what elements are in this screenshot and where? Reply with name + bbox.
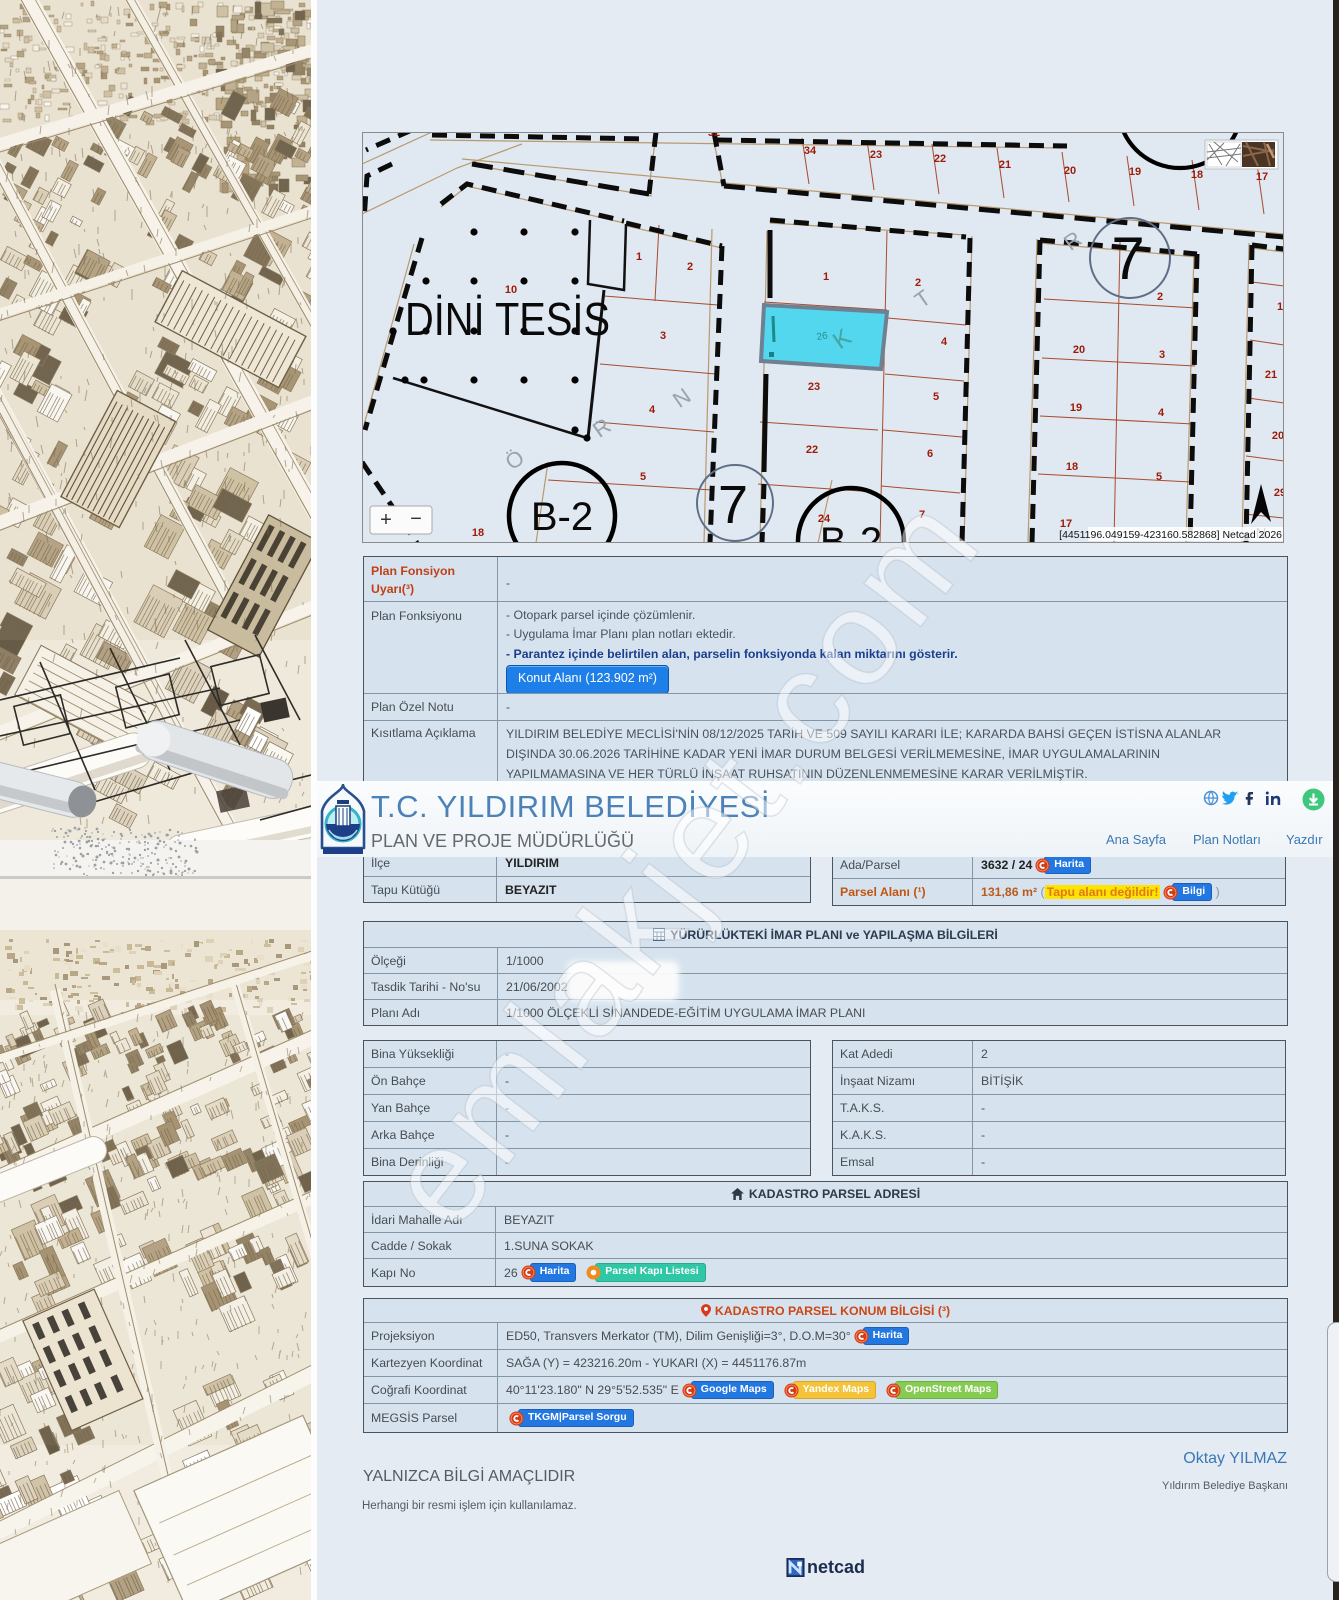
svg-text:21: 21 bbox=[999, 159, 1011, 171]
svg-text:5: 5 bbox=[640, 471, 646, 483]
svg-text:7: 7 bbox=[1111, 225, 1144, 292]
svg-text:−: − bbox=[410, 508, 422, 530]
svg-text:4: 4 bbox=[941, 336, 948, 348]
svg-text:22: 22 bbox=[934, 153, 946, 165]
svg-text:1: 1 bbox=[823, 271, 829, 283]
svg-text:22: 22 bbox=[806, 444, 818, 456]
svg-text:B-2: B-2 bbox=[820, 520, 882, 543]
svg-text:6: 6 bbox=[927, 448, 933, 460]
svg-text:7: 7 bbox=[919, 509, 925, 521]
svg-text:4: 4 bbox=[1158, 407, 1165, 419]
svg-text:DİNİ TESİS: DİNİ TESİS bbox=[405, 293, 610, 345]
svg-text:2: 2 bbox=[1157, 291, 1163, 303]
svg-text:3: 3 bbox=[660, 330, 666, 342]
svg-text:29: 29 bbox=[1274, 487, 1284, 499]
svg-text:20: 20 bbox=[1272, 430, 1284, 442]
svg-text:5: 5 bbox=[933, 391, 939, 403]
svg-text:5: 5 bbox=[1156, 471, 1162, 483]
svg-text:18: 18 bbox=[1066, 461, 1078, 473]
svg-text:[4451196.049159-423160.582868]: [4451196.049159-423160.582868] Netcad 20… bbox=[1059, 529, 1282, 541]
svg-text:19: 19 bbox=[1070, 402, 1082, 414]
svg-text:1: 1 bbox=[1277, 301, 1283, 313]
svg-text:18: 18 bbox=[1191, 169, 1203, 181]
svg-text:1: 1 bbox=[636, 251, 642, 263]
svg-text:B-2: B-2 bbox=[531, 495, 593, 539]
svg-text:23: 23 bbox=[870, 149, 882, 161]
svg-text:+: + bbox=[380, 509, 392, 531]
svg-text:23: 23 bbox=[808, 381, 820, 393]
svg-text:3: 3 bbox=[1159, 349, 1165, 361]
svg-text:20: 20 bbox=[1064, 165, 1076, 177]
svg-text:34: 34 bbox=[804, 145, 817, 157]
svg-text:19: 19 bbox=[1129, 166, 1141, 178]
svg-text:10: 10 bbox=[505, 284, 517, 296]
svg-text:18: 18 bbox=[472, 527, 484, 539]
svg-text:20: 20 bbox=[1073, 344, 1085, 356]
svg-text:17: 17 bbox=[1256, 171, 1268, 183]
svg-text:2: 2 bbox=[687, 261, 693, 273]
svg-text:4: 4 bbox=[649, 404, 656, 416]
svg-text:52: 52 bbox=[708, 132, 720, 139]
svg-text:21: 21 bbox=[1265, 369, 1277, 381]
svg-text:7: 7 bbox=[718, 475, 748, 535]
